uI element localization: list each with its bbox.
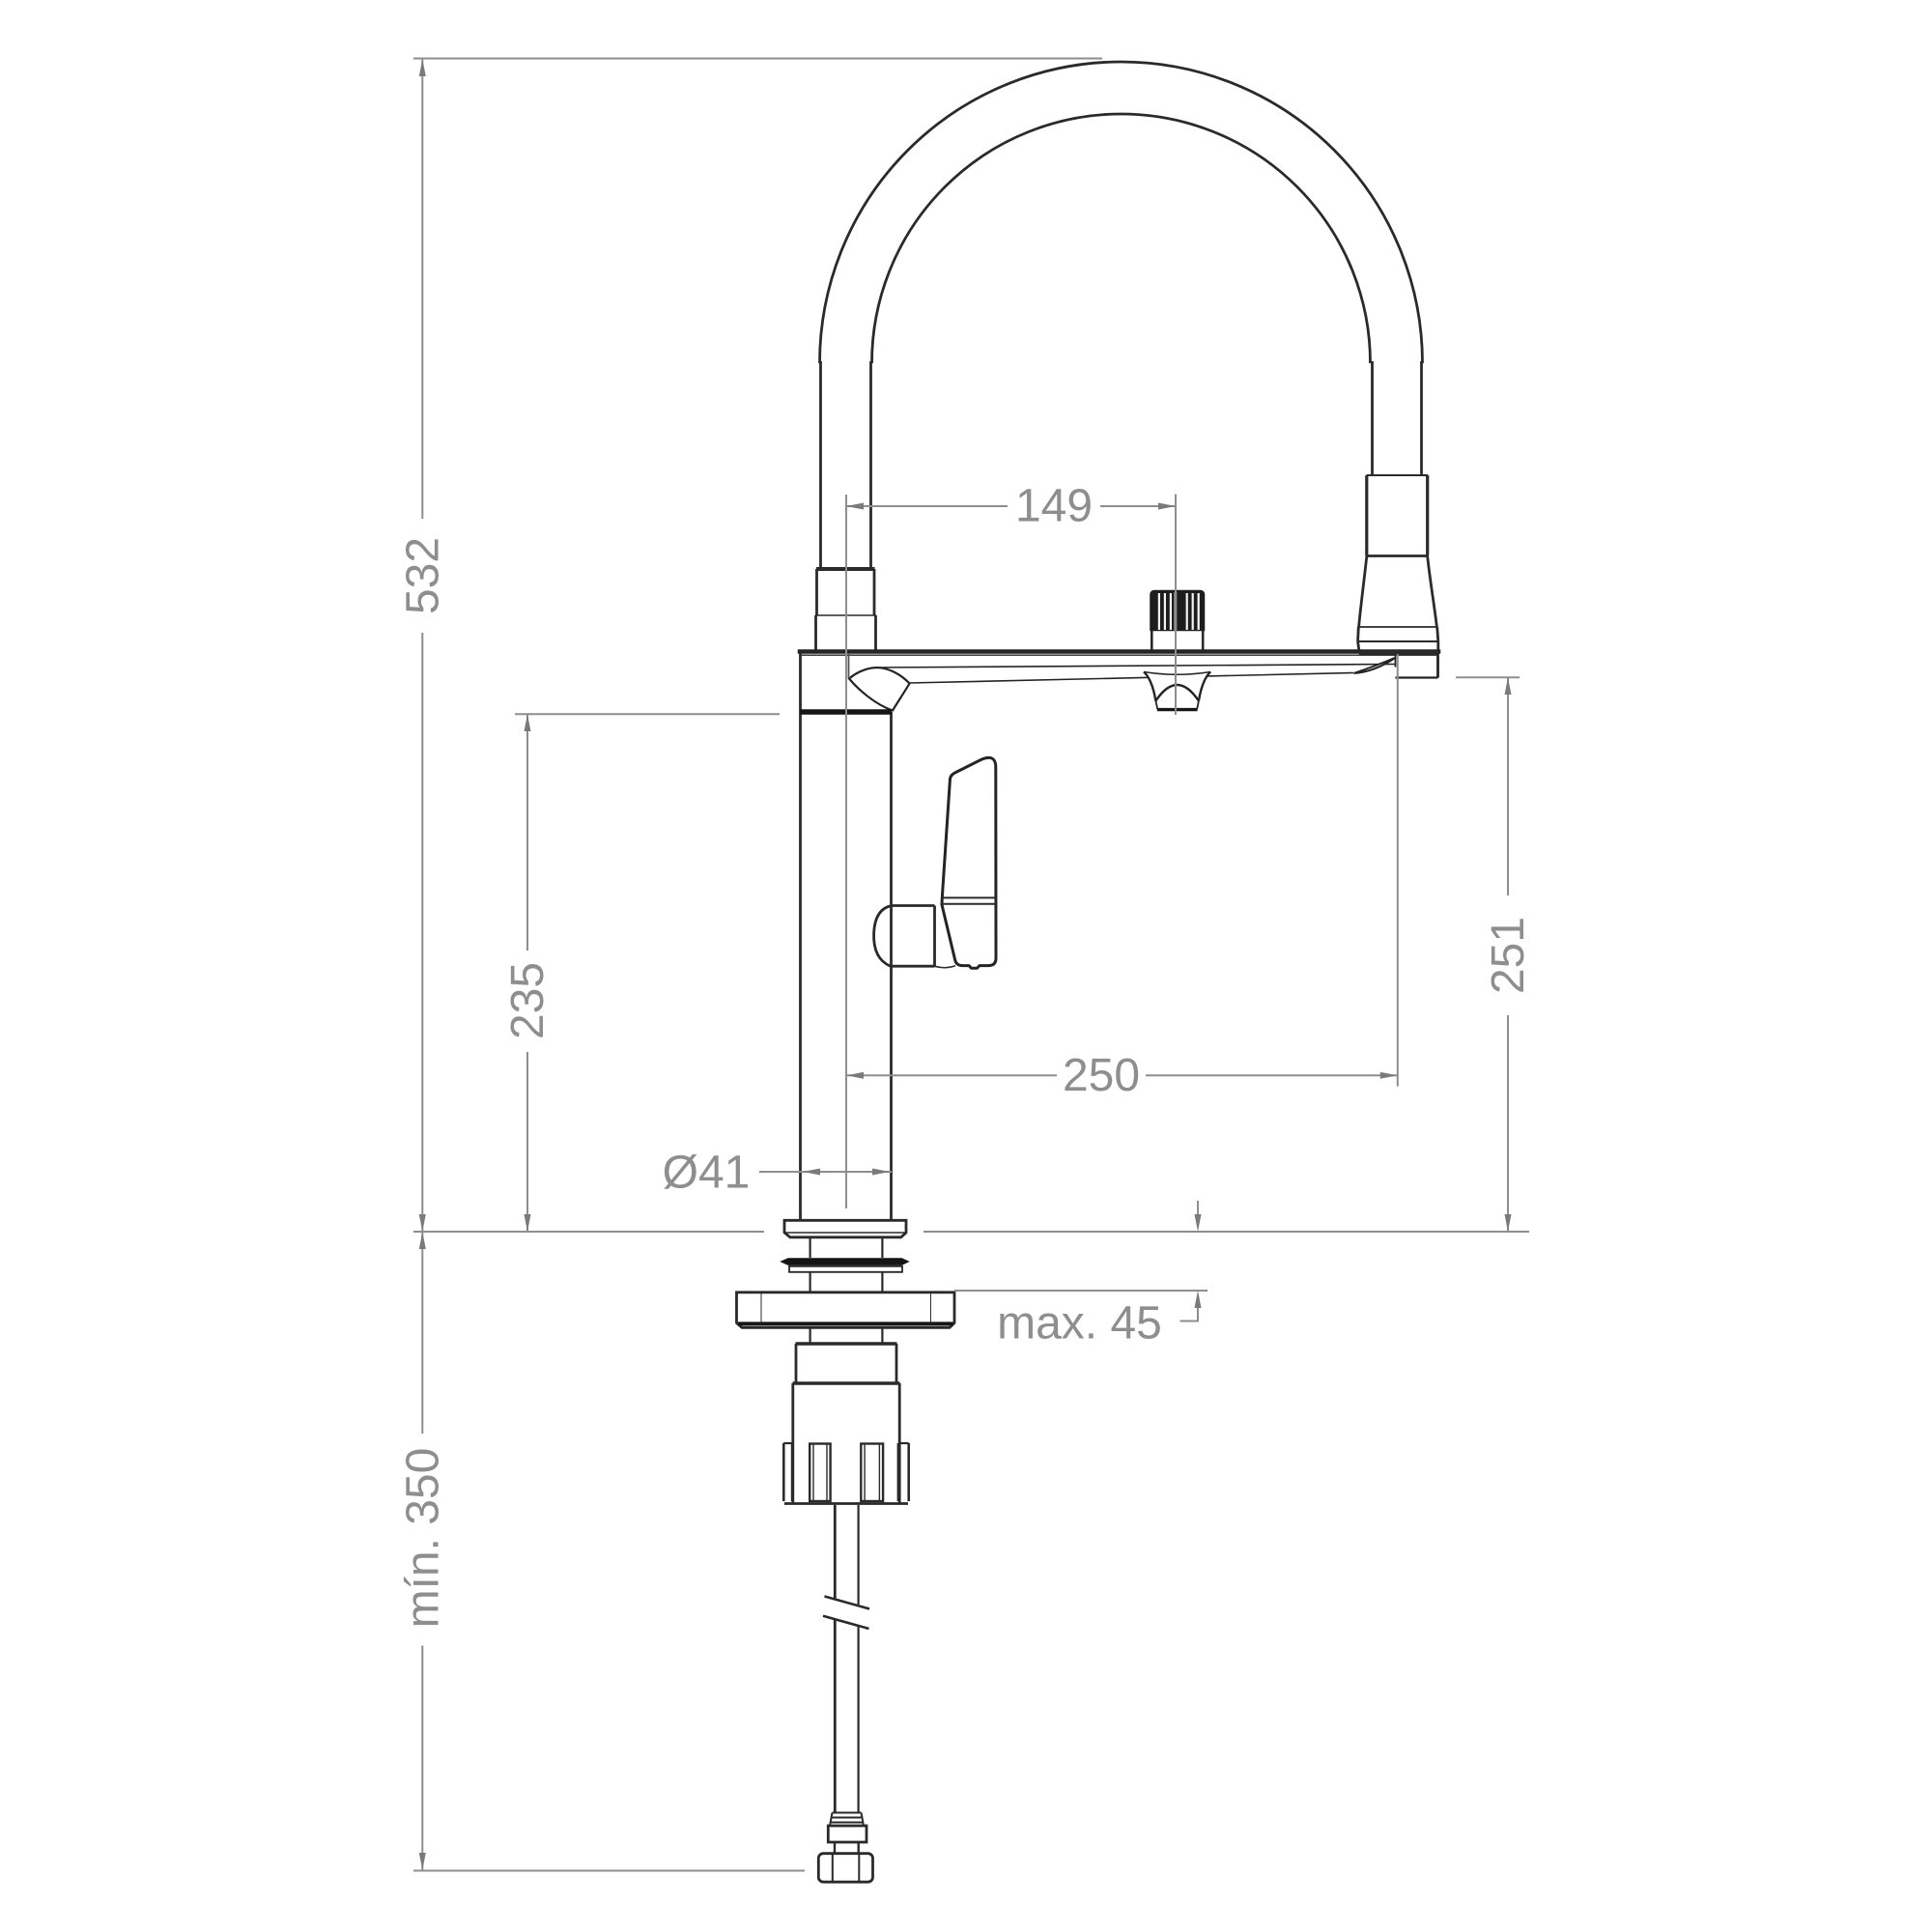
svg-text:max. 45: max. 45	[997, 1298, 1162, 1350]
svg-text:149: 149	[1015, 481, 1093, 532]
svg-text:250: 250	[1063, 1050, 1140, 1101]
svg-text:Ø41: Ø41	[663, 1148, 751, 1199]
svg-text:532: 532	[397, 537, 448, 614]
svg-text:251: 251	[1483, 917, 1534, 994]
svg-text:mín. 350: mín. 350	[397, 1448, 448, 1629]
svg-text:235: 235	[502, 962, 554, 1039]
